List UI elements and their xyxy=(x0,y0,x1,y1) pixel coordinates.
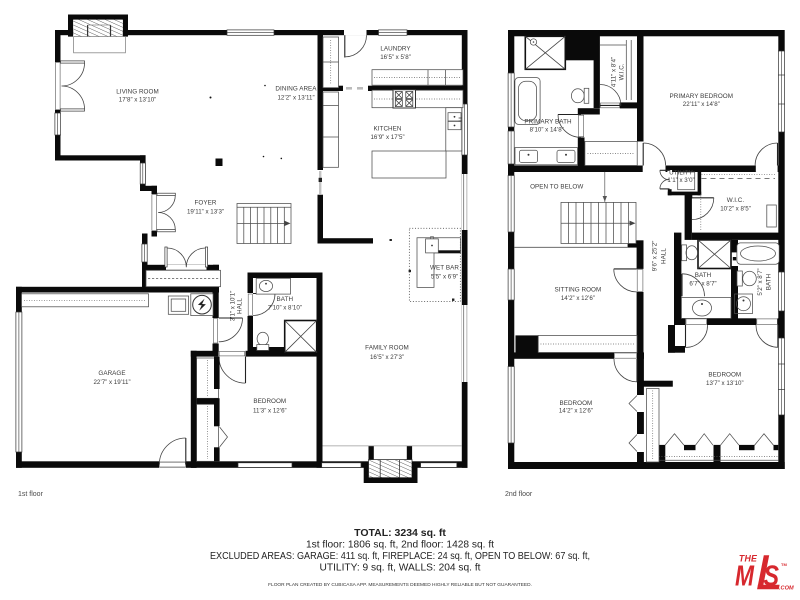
svg-text:HALL: HALL xyxy=(237,298,244,314)
svg-text:BATH: BATH xyxy=(277,296,294,303)
svg-text:1’1” x 3’0”: 1’1” x 3’0” xyxy=(667,177,694,184)
svg-text:BEDROOM: BEDROOM xyxy=(559,400,592,407)
svg-text:UTILITY: 9 sq. ft, WALLS: 204: UTILITY: 9 sq. ft, WALLS: 204 sq. ft xyxy=(320,563,481,574)
svg-text:GARAGE: GARAGE xyxy=(98,370,125,377)
svg-text:5’2” x 8’7”: 5’2” x 8’7” xyxy=(757,268,764,295)
svg-text:13’7” x 13’10”: 13’7” x 13’10” xyxy=(706,380,744,387)
svg-text:7’10” x 8’10”: 7’10” x 8’10” xyxy=(268,304,302,311)
svg-text:3’1” x 10’1”: 3’1” x 10’1” xyxy=(230,291,237,322)
svg-text:M: M xyxy=(735,561,755,593)
svg-text:BEDROOM: BEDROOM xyxy=(253,398,286,405)
svg-text:LAUNDRY: LAUNDRY xyxy=(380,46,411,53)
svg-text:11’3” x 12’6”: 11’3” x 12’6” xyxy=(253,407,287,414)
svg-text:FAMILY ROOM: FAMILY ROOM xyxy=(365,344,409,351)
svg-text:1st floor: 1806 sq. ft, 2nd fl: 1st floor: 1806 sq. ft, 2nd floor: 1428 … xyxy=(306,540,494,551)
svg-text:WET BAR: WET BAR xyxy=(430,264,459,271)
svg-text:UTILITY: UTILITY xyxy=(669,170,694,177)
svg-text:PRIMARY BATH: PRIMARY BATH xyxy=(524,119,572,126)
svg-text:OPEN TO BELOW: OPEN TO BELOW xyxy=(530,184,583,191)
svg-text:PRIMARY BEDROOM: PRIMARY BEDROOM xyxy=(670,93,734,100)
svg-text:6’7” x 8’7”: 6’7” x 8’7” xyxy=(689,281,716,288)
svg-text:22’11” x 14’8”: 22’11” x 14’8” xyxy=(683,101,720,108)
svg-text:FOYER: FOYER xyxy=(195,200,217,207)
svg-text:BATH: BATH xyxy=(766,273,773,290)
svg-text:8’10” x 14’8”: 8’10” x 14’8” xyxy=(530,127,564,134)
svg-text:.COM: .COM xyxy=(779,586,794,592)
svg-text:KITCHEN: KITCHEN xyxy=(374,126,402,133)
svg-text:22’7” x 19’11”: 22’7” x 19’11” xyxy=(93,379,130,386)
svg-text:14’2” x 12’6”: 14’2” x 12’6” xyxy=(561,295,595,302)
svg-text:DINING AREA: DINING AREA xyxy=(275,85,317,92)
svg-text:10’2” x 8’5”: 10’2” x 8’5” xyxy=(720,205,751,212)
svg-text:W.I.C.: W.I.C. xyxy=(619,63,626,80)
svg-text:LIVING ROOM: LIVING ROOM xyxy=(116,88,159,95)
svg-text:2nd floor: 2nd floor xyxy=(505,491,533,498)
svg-text:16’9” x 17’5”: 16’9” x 17’5” xyxy=(370,134,404,141)
svg-text:4’11” x 8’4”: 4’11” x 8’4” xyxy=(611,57,618,87)
svg-text:W.I.C.: W.I.C. xyxy=(727,197,745,204)
svg-text:14’2” x 12’6”: 14’2” x 12’6” xyxy=(559,407,593,414)
svg-text:BEDROOM: BEDROOM xyxy=(708,372,741,379)
svg-text:1st floor: 1st floor xyxy=(18,491,44,498)
svg-text:EXCLUDED AREAS: GARAGE: 411 sq: EXCLUDED AREAS: GARAGE: 411 sq. ft, FIRE… xyxy=(210,551,590,562)
svg-text:S: S xyxy=(764,561,780,593)
svg-text:FLOOR PLAN CREATED BY CUBICASA: FLOOR PLAN CREATED BY CUBICASA APP. MEAS… xyxy=(268,582,532,588)
svg-text:5’5” x 6’9”: 5’5” x 6’9” xyxy=(431,274,458,281)
svg-text:19’11” x 13’3”: 19’11” x 13’3” xyxy=(187,209,224,216)
svg-text:16’5” x 27’3”: 16’5” x 27’3” xyxy=(370,354,404,361)
svg-text:BATH: BATH xyxy=(695,272,712,279)
svg-text:17’8” x 13’10”: 17’8” x 13’10” xyxy=(119,97,157,104)
svg-text:9’6” x 25’2”: 9’6” x 25’2” xyxy=(652,241,659,272)
svg-text:HALL: HALL xyxy=(661,248,668,264)
svg-text:TM: TM xyxy=(781,562,787,567)
svg-text:16’5” x 5’8”: 16’5” x 5’8” xyxy=(380,54,411,61)
svg-text:TOTAL: 3234 sq. ft: TOTAL: 3234 sq. ft xyxy=(354,527,446,539)
svg-text:12’2” x 13’11”: 12’2” x 13’11” xyxy=(277,95,314,102)
svg-text:SITTING ROOM: SITTING ROOM xyxy=(555,287,602,294)
